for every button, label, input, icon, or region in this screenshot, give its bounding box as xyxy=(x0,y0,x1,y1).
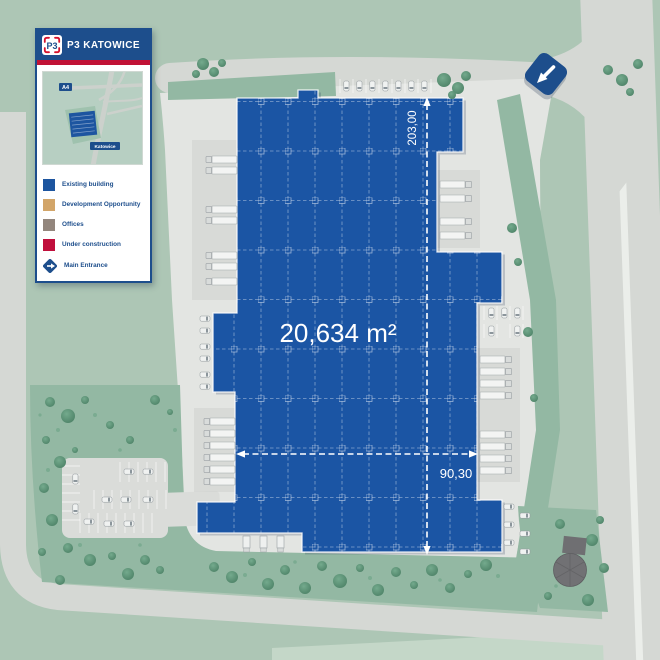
info-panel: P3 P3 KATOWICE A4 xyxy=(35,28,152,283)
legend-swatch-existing-building xyxy=(43,179,55,191)
site-map-view: 203,00 90,30 20,634 m² xyxy=(0,0,660,660)
inset-location-map: A4 Katowice xyxy=(42,71,143,165)
length-label: 203,00 xyxy=(407,110,419,145)
legend-label: Offices xyxy=(62,221,84,228)
inset-building xyxy=(69,111,97,138)
panel-header: P3 P3 KATOWICE xyxy=(37,30,150,60)
legend-swatch-under-construction xyxy=(43,239,55,251)
legend-label: Under construction xyxy=(62,241,121,248)
panel-title: P3 KATOWICE xyxy=(67,40,140,51)
legend-item-main-entrance: Main Entrance xyxy=(43,259,144,273)
width-label: 90,30 xyxy=(440,466,473,481)
svg-text:Katowice: Katowice xyxy=(94,144,115,150)
main-entrance-icon xyxy=(43,259,57,273)
legend-label: Main Entrance xyxy=(64,262,108,269)
access-road-top xyxy=(170,72,548,78)
inset-road-badge: A4 xyxy=(59,83,72,91)
area-label: 20,634 m² xyxy=(279,318,396,348)
inset-place-label: Katowice xyxy=(90,142,120,150)
p3-logo: P3 xyxy=(42,35,62,55)
legend-item-development-opportunity: Development Opportunity xyxy=(43,199,144,211)
legend-label: Development Opportunity xyxy=(62,201,140,208)
legend-swatch-development-opportunity xyxy=(43,199,55,211)
panel-body: A4 Katowice Existing building Developmen… xyxy=(37,65,150,281)
legend-item-under-construction: Under construction xyxy=(43,239,144,251)
p3-logo-text: P3 xyxy=(46,41,57,51)
legend-item-existing-building: Existing building xyxy=(43,179,144,191)
trucks-bottom-docks xyxy=(243,536,284,552)
svg-text:A4: A4 xyxy=(62,85,70,91)
legend-item-offices: Offices xyxy=(43,219,144,231)
legend-swatch-offices xyxy=(43,219,55,231)
legend-label: Existing building xyxy=(62,181,113,188)
legend: Existing building Development Opportunit… xyxy=(42,177,145,277)
